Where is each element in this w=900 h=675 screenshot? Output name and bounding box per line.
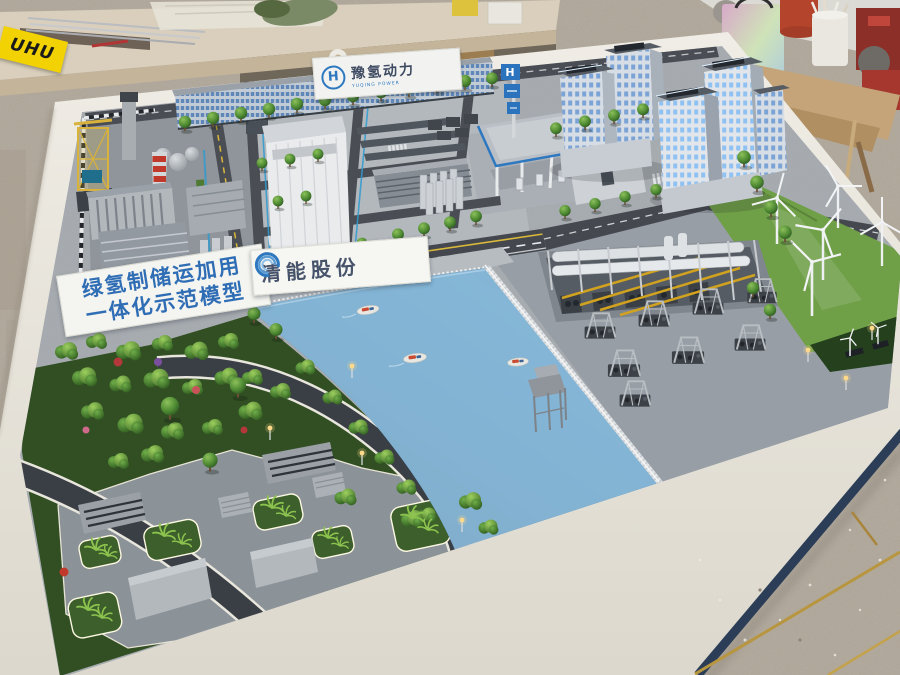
workshop-photo: H [0, 0, 900, 675]
scene-drawing: H [0, 0, 900, 675]
electrolyzer-hall [262, 116, 350, 258]
storage-columns [420, 169, 463, 215]
glue-brand: UHU [8, 34, 56, 64]
hydrogen-logo-icon: H [321, 65, 347, 91]
company-swirl-logo-icon [251, 249, 283, 281]
svg-text:H: H [505, 66, 514, 79]
